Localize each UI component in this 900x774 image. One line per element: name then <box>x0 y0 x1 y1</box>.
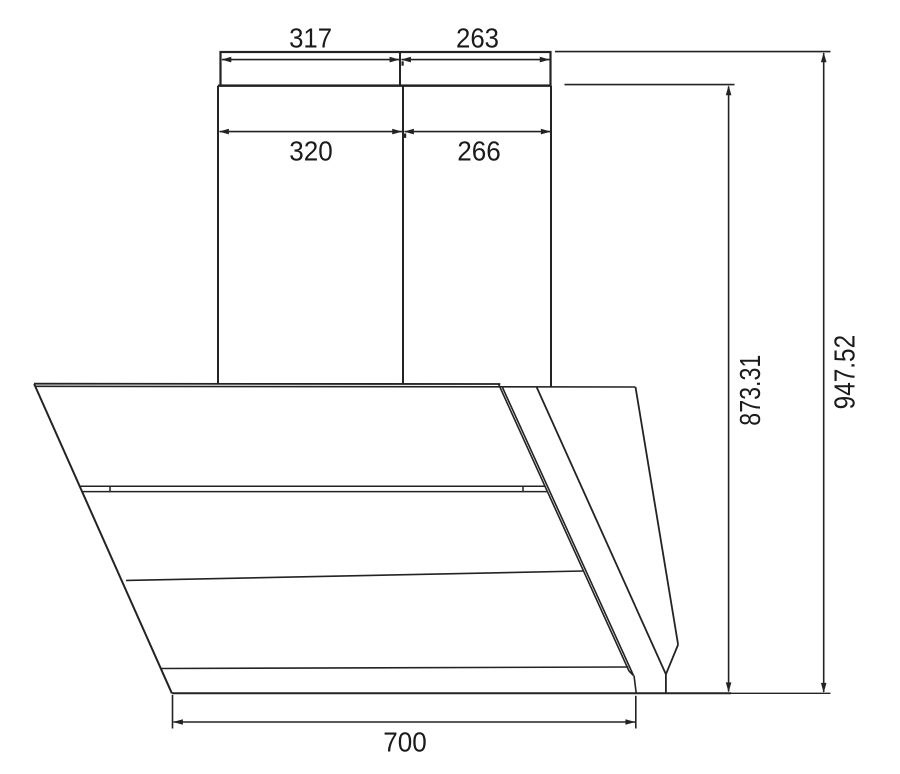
svg-text:320: 320 <box>289 136 333 167</box>
svg-text:266: 266 <box>457 136 501 167</box>
svg-text:700: 700 <box>383 727 427 758</box>
svg-text:263: 263 <box>456 22 499 53</box>
svg-text:873.31: 873.31 <box>735 355 767 426</box>
svg-text:947.52: 947.52 <box>830 335 862 410</box>
svg-text:317: 317 <box>289 22 332 53</box>
